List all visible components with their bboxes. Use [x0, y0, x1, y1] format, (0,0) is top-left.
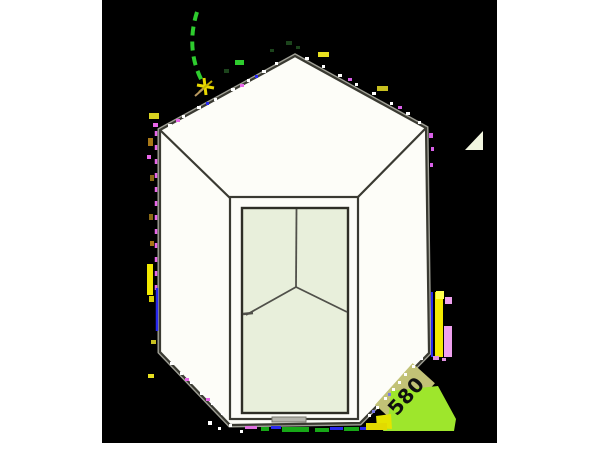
- cabinet-drawing-image: 580: [0, 0, 600, 450]
- door-handle: [272, 417, 306, 422]
- green-dash-icon: [235, 60, 244, 65]
- product-drawing-canvas: 580: [0, 0, 600, 450]
- door-glass-panel: [242, 208, 348, 413]
